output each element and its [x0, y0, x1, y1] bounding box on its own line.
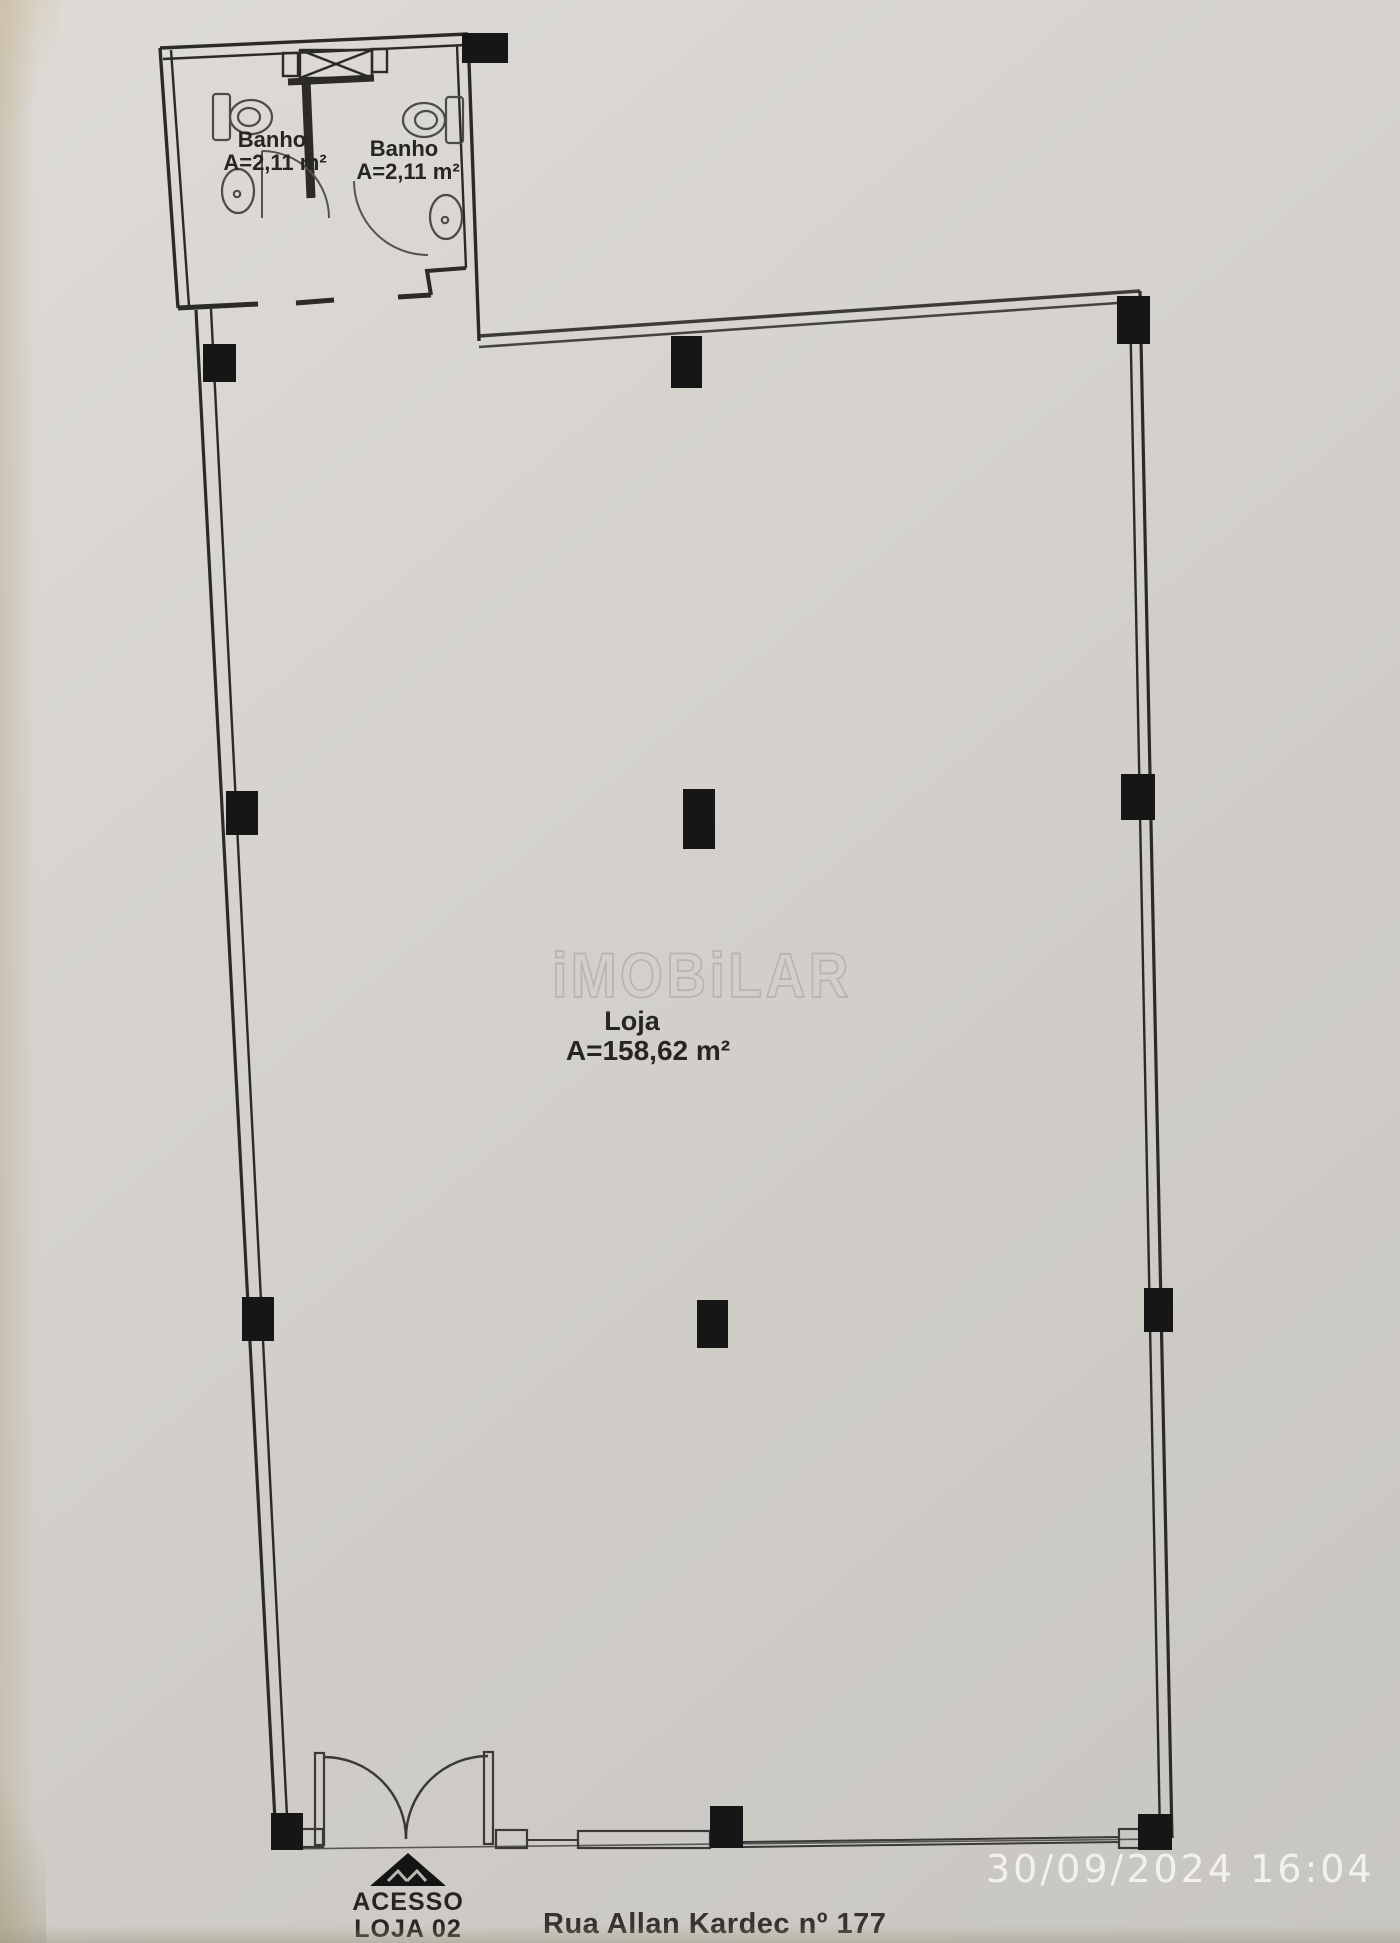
street-address: Rua Allan Kardec nº 177	[543, 1908, 886, 1940]
bathroom-left-label: Banho	[238, 127, 306, 152]
access-label-line1: ACESSO	[352, 1888, 464, 1916]
bathroom-left-area: A=2,11 m²	[223, 150, 326, 175]
column	[271, 1813, 303, 1850]
bathroom-right-label: Banho	[370, 136, 438, 161]
storefront-window-b	[496, 1830, 527, 1848]
store-label: Loja	[604, 1006, 660, 1036]
column	[462, 33, 508, 63]
column	[203, 344, 236, 382]
floor-plan-drawing: iMOBiLAR	[0, 0, 1400, 1943]
bathroom-right-area: A=2,11 m²	[356, 159, 459, 184]
sink-right	[430, 195, 462, 239]
column	[1138, 1814, 1172, 1850]
column	[697, 1300, 728, 1348]
access-label-line2: LOJA 02	[354, 1915, 462, 1943]
watermark-text: iMOBiLAR	[552, 941, 852, 1011]
column	[242, 1297, 274, 1341]
door-post-right	[484, 1752, 493, 1844]
column	[1117, 296, 1150, 344]
sink-left	[222, 169, 254, 213]
ventilation-shaft	[283, 49, 387, 78]
column	[1144, 1288, 1173, 1332]
floor-plan-photo: iMOBiLAR	[0, 0, 1400, 1943]
camera-timestamp: 30/09/2024 16:04	[986, 1847, 1375, 1891]
column	[710, 1806, 743, 1848]
access-marker: ACESSO LOJA 02	[352, 1853, 464, 1943]
door-arc-right-bathroom	[354, 181, 428, 255]
column	[226, 791, 258, 835]
bathroom-block-walls	[160, 34, 479, 341]
store-area: A=158,62 m²	[566, 1035, 730, 1066]
entrance-door-arc-right	[406, 1756, 488, 1839]
entrance-door-arc-left	[324, 1757, 406, 1839]
column	[671, 336, 702, 388]
column	[683, 789, 715, 849]
column	[1121, 774, 1155, 820]
